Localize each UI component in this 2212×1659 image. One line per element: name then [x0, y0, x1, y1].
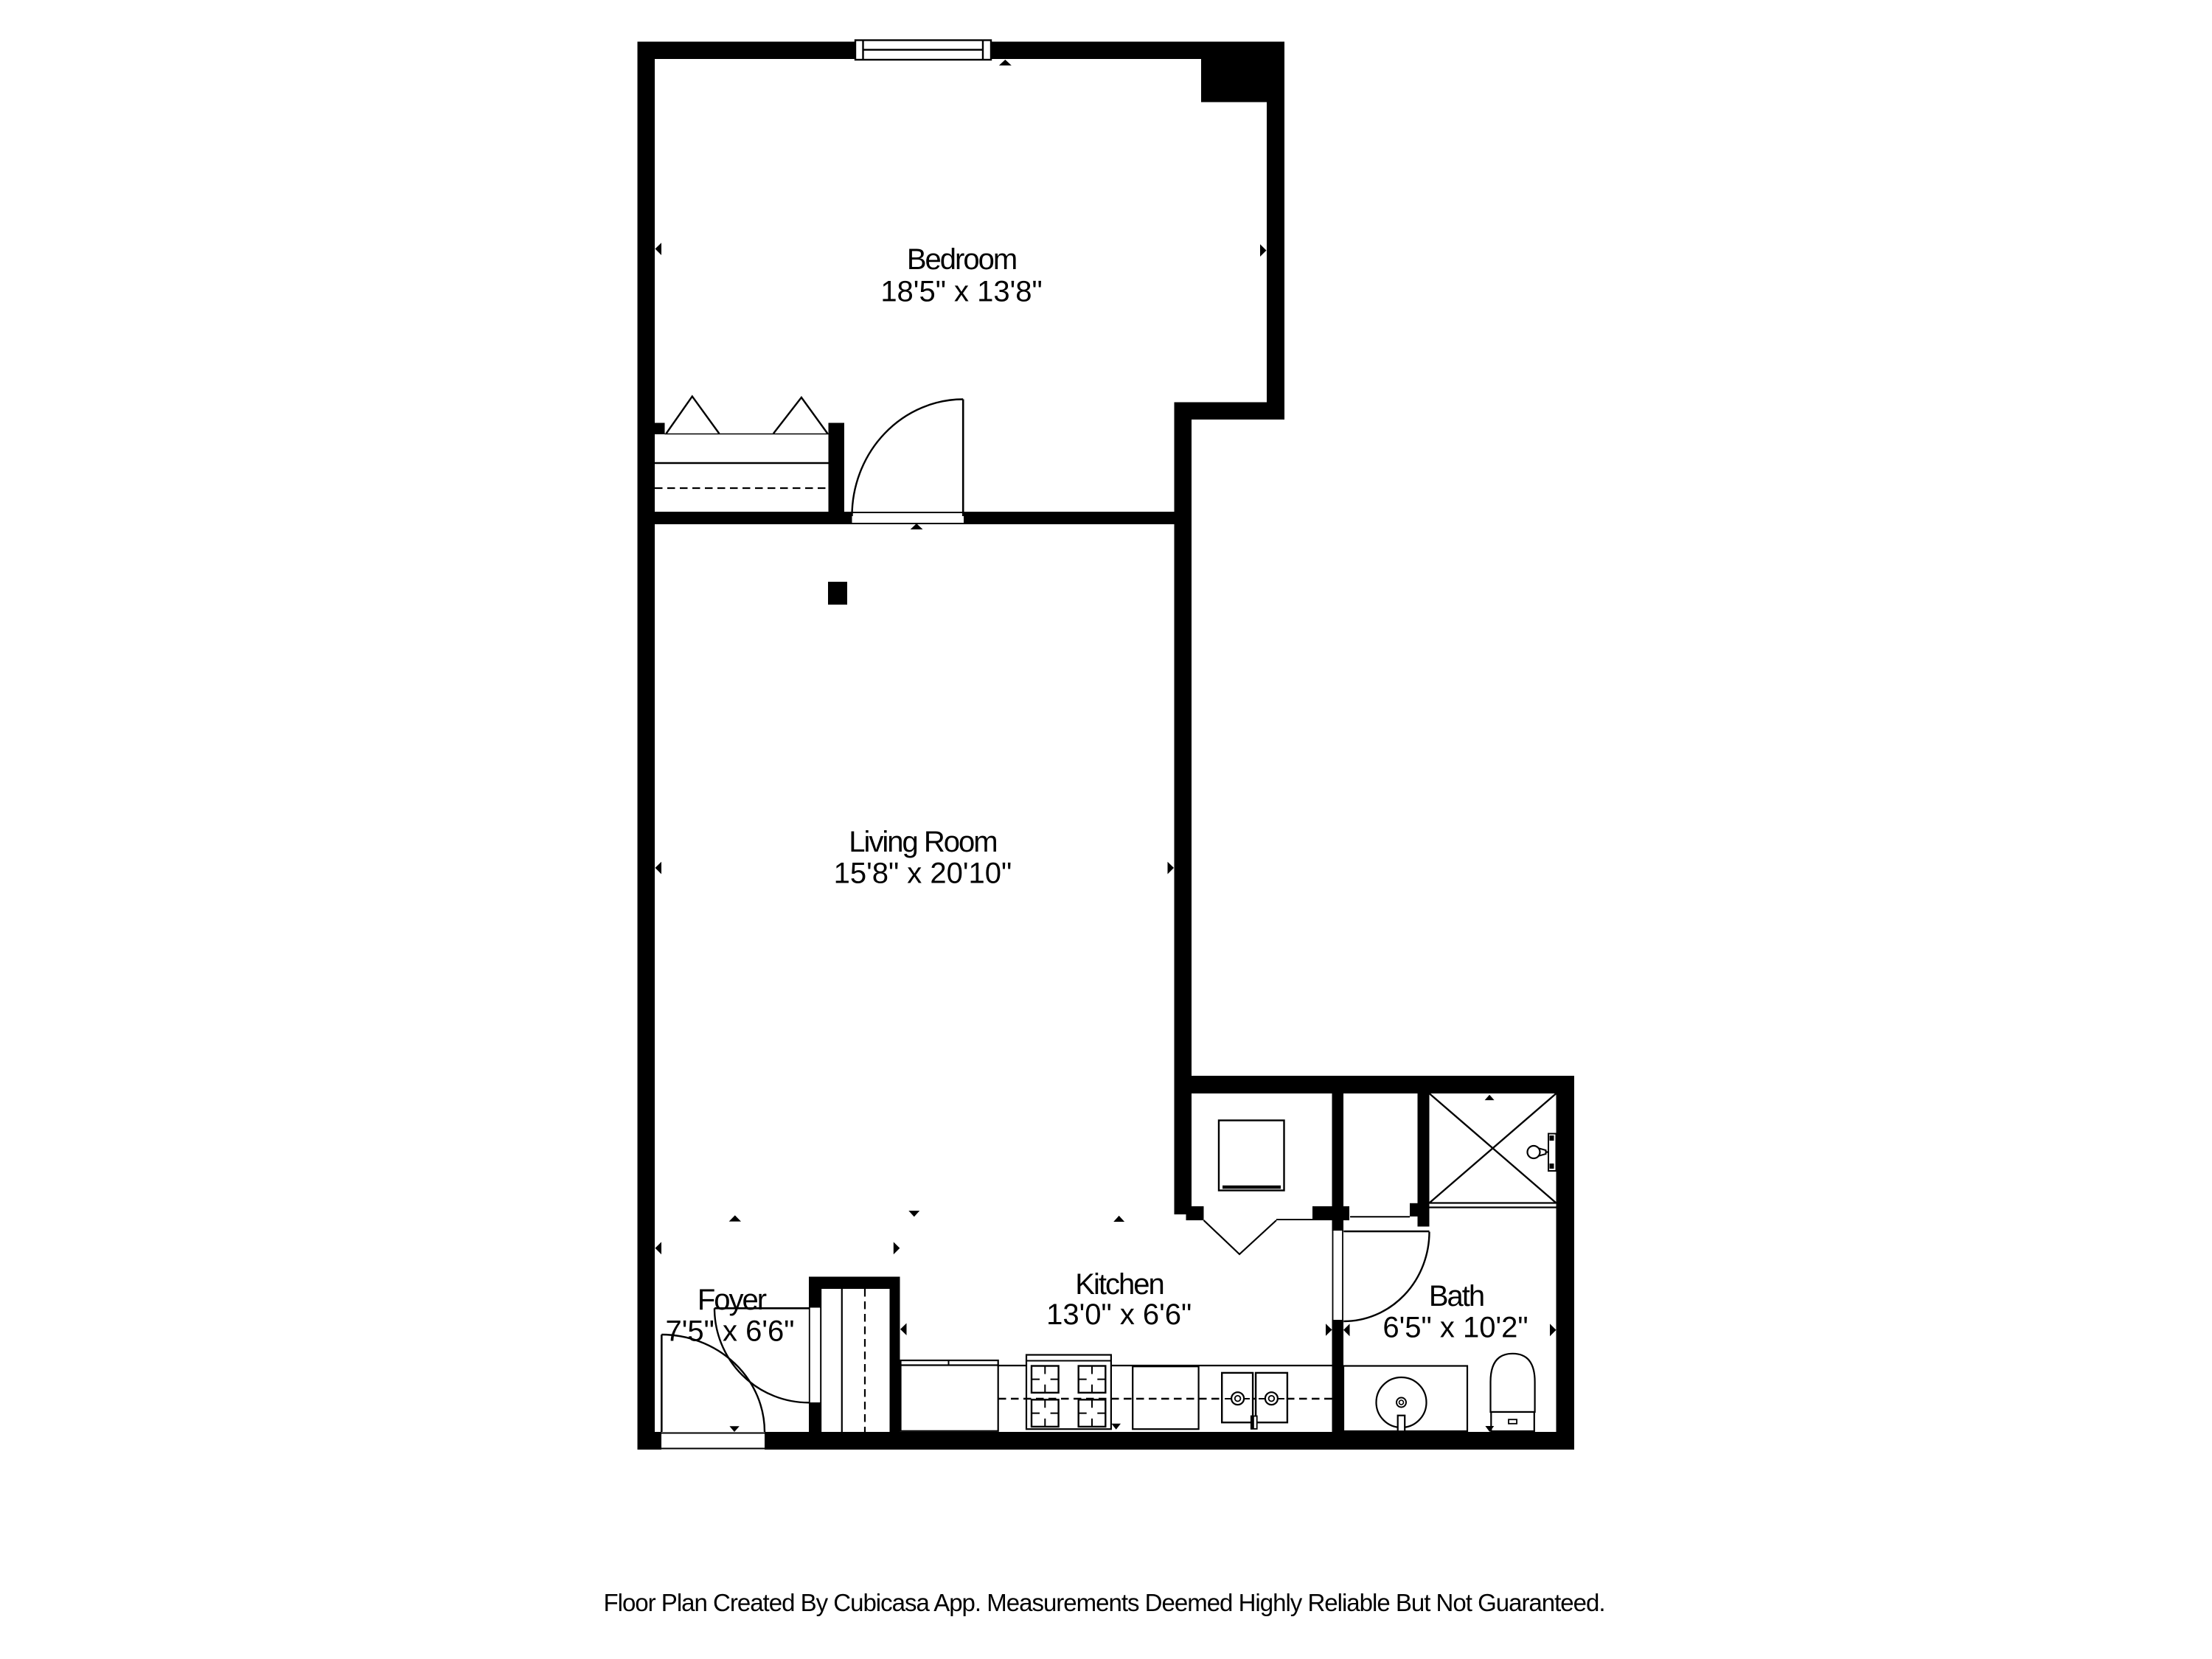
svg-text:Bath: Bath [1429, 1280, 1484, 1312]
svg-text:18'5" x 13'8": 18'5" x 13'8" [880, 276, 1042, 308]
svg-text:13'0" x 6'6": 13'0" x 6'6" [1046, 1298, 1192, 1331]
svg-text:Bedroom: Bedroom [907, 243, 1016, 276]
svg-text:Foyer: Foyer [698, 1284, 767, 1316]
svg-text:Kitchen: Kitchen [1075, 1268, 1163, 1301]
svg-text:Living Room: Living Room [849, 826, 996, 858]
svg-text:15'8" x 20'10": 15'8" x 20'10" [834, 858, 1012, 890]
svg-text:7'5" x 6'6": 7'5" x 6'6" [666, 1315, 795, 1347]
svg-text:6'5" x 10'2": 6'5" x 10'2" [1382, 1311, 1528, 1343]
svg-text:Floor Plan Created By Cubicasa: Floor Plan Created By Cubicasa App. Meas… [603, 1589, 1604, 1616]
